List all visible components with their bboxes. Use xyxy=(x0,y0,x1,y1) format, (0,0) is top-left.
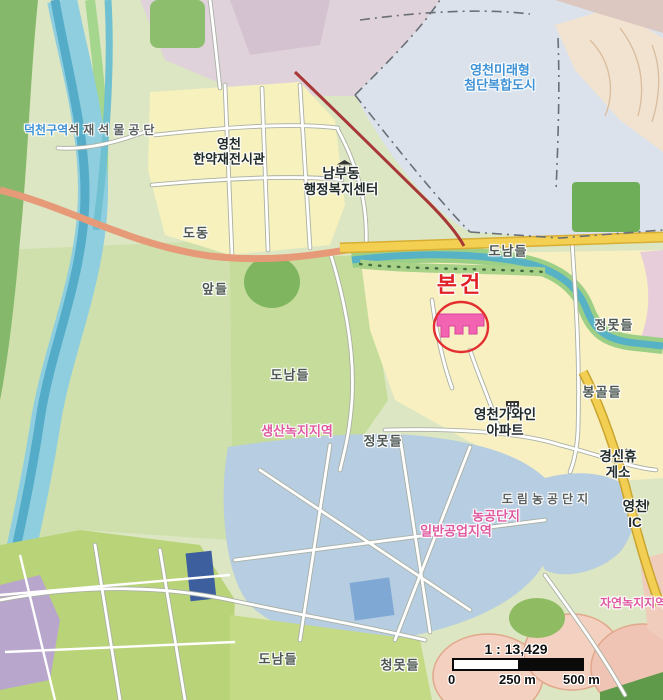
map-canvas[interactable]: 영천미래형 첨단복합도시 덕천구역석재석물공단 영천 한약재전시관 남부동 행정… xyxy=(0,0,663,700)
scale-tick-zero: 0 xyxy=(448,672,455,687)
scale-tick-end: 500 m xyxy=(563,672,600,687)
subject-parcel-building xyxy=(437,314,484,337)
forest-top xyxy=(150,0,205,48)
forest-park xyxy=(244,256,300,308)
scale-bar-segment-black xyxy=(518,660,582,669)
urban-yellow-nw xyxy=(148,82,345,255)
scale-bar-graphic xyxy=(452,658,584,671)
scale-bar: 1 : 13,429 0 250 m 500 m xyxy=(444,641,614,693)
forest-ne xyxy=(572,182,640,232)
scale-ratio: 1 : 13,429 xyxy=(452,641,580,657)
forest-se xyxy=(509,598,565,638)
map-artwork xyxy=(0,0,663,700)
scale-bar-segment-white xyxy=(454,660,518,669)
scale-tick-mid: 250 m xyxy=(499,672,536,687)
building-block-blue xyxy=(350,577,395,620)
